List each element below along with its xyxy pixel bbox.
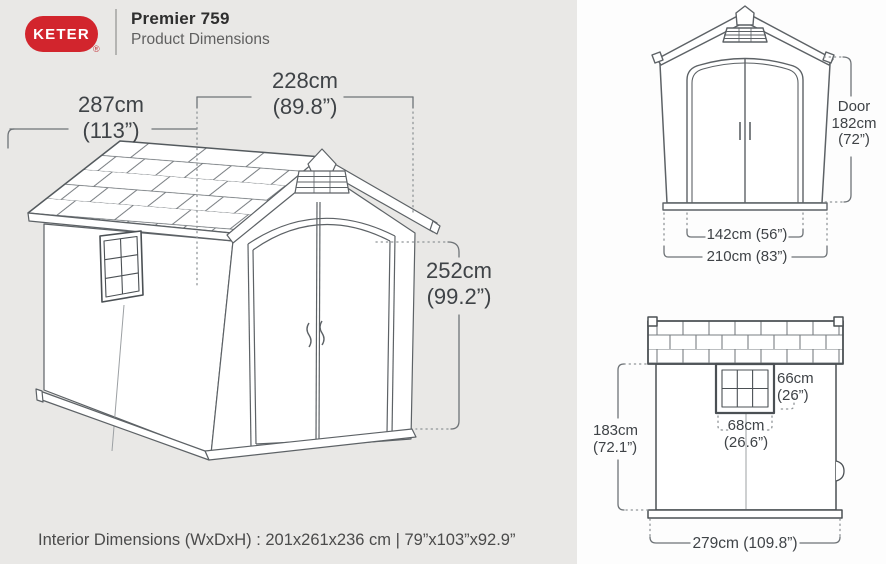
side-roof-endcap-left (648, 317, 657, 326)
keter-logo: KETER (25, 16, 98, 52)
dim-window-width-label: 68cm (26.6”) (673, 418, 819, 451)
dim-door-word: Door (822, 99, 886, 116)
page-title: Premier 759 (131, 9, 230, 29)
dim-depth-cm: 287cm (38, 92, 184, 118)
dim-window-width-in: (26.6”) (673, 435, 819, 452)
dim-wall-height-cm: 183cm (593, 423, 653, 440)
base-rail-endcap (36, 389, 43, 402)
side-roof-endcap-right (834, 317, 843, 326)
dim-door-height-label: Door 182cm (72”) (822, 99, 886, 149)
side-roof-band (648, 317, 843, 364)
front-roof-finial (736, 6, 754, 25)
dim-window-height-label: 66cm (26”) (777, 371, 837, 404)
side-window-iso (100, 231, 143, 302)
dim-window-height-cm: 66cm (777, 371, 837, 388)
dim-height-in: (99.2”) (386, 284, 532, 310)
product-dimensions-page: KETER ® Premier 759 Product Dimensions 2… (0, 0, 886, 564)
dim-total-depth-label: 279cm (109.8”) (660, 536, 830, 553)
dim-window-width-cm: 68cm (673, 418, 819, 435)
dim-height-cm: 252cm (386, 258, 532, 284)
dim-depth-label: 287cm (113”) (38, 92, 184, 144)
dim-total-width-label: 210cm (83”) (674, 249, 820, 266)
gable-vent (295, 171, 349, 193)
dim-width-in: (89.8”) (232, 94, 378, 120)
dim-window-height-in: (26”) (777, 388, 837, 405)
dim-height-label: 252cm (99.2”) (386, 258, 532, 310)
dim-door-in: (72”) (822, 132, 886, 149)
side-window (716, 364, 774, 413)
dim-wall-height-in: (72.1”) (593, 440, 653, 457)
side-door-handle (836, 461, 844, 481)
isometric-shed-drawing (28, 141, 440, 460)
page-subtitle: Product Dimensions (131, 31, 270, 49)
front-view-drawing (652, 6, 834, 210)
dim-width-label: 228cm (89.8”) (232, 68, 378, 120)
dim-width-cm: 228cm (232, 68, 378, 94)
front-gable-vent (723, 28, 767, 42)
front-roof-endcap-left (652, 52, 663, 63)
dim-door-width-label: 142cm (56”) (674, 227, 820, 244)
interior-dimensions-text: Interior Dimensions (WxDxH) : 201x261x23… (38, 531, 515, 550)
dim-wall-height-label: 183cm (72.1”) (593, 423, 653, 456)
front-base (663, 203, 827, 210)
dim-depth-in: (113”) (38, 118, 184, 144)
header-divider (115, 9, 117, 55)
side-base (648, 510, 842, 518)
dim-door-cm: 182cm (822, 116, 886, 133)
registered-trademark-icon: ® (93, 44, 100, 54)
keter-logo-text: KETER (33, 26, 90, 43)
